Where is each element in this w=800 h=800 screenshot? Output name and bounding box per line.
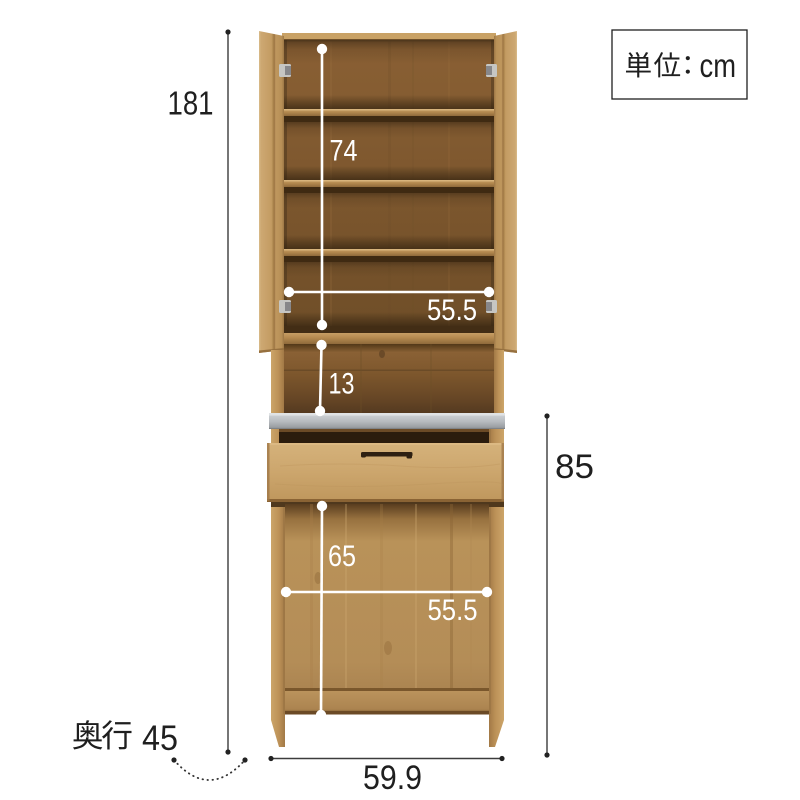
svg-text:65: 65 xyxy=(328,540,356,573)
svg-text:59.9: 59.9 xyxy=(363,759,422,797)
svg-text:13: 13 xyxy=(329,368,355,401)
svg-text:181: 181 xyxy=(168,85,214,122)
svg-text:45: 45 xyxy=(142,718,178,758)
svg-text:85: 85 xyxy=(555,448,594,486)
svg-text:74: 74 xyxy=(330,135,358,168)
svg-text:cm: cm xyxy=(700,47,737,84)
svg-text:55.5: 55.5 xyxy=(428,594,478,627)
svg-text:55.5: 55.5 xyxy=(427,294,477,327)
